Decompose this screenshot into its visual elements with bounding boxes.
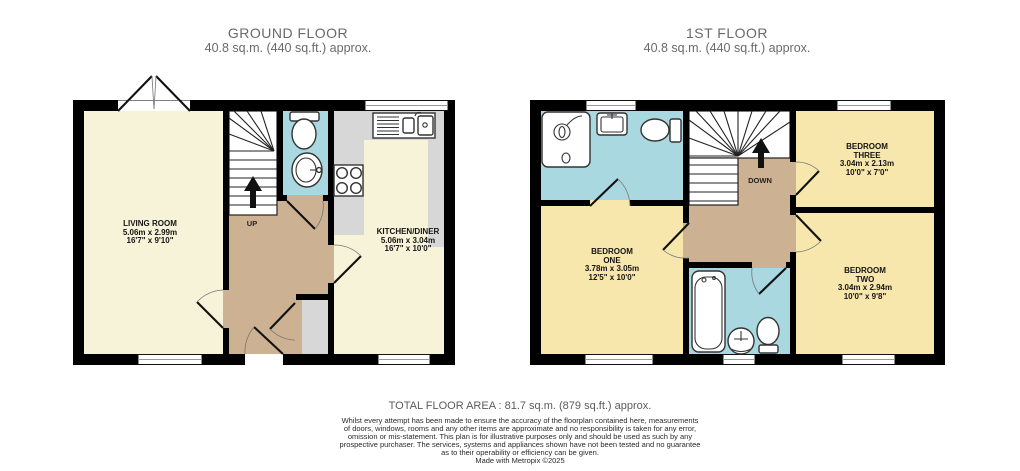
bathtub-icon [692, 271, 725, 352]
window [365, 101, 448, 111]
wall [683, 111, 689, 223]
down-label: DOWN [740, 176, 780, 185]
wall [323, 195, 328, 201]
hob-icon [334, 165, 363, 196]
outer-wall-right [444, 100, 455, 365]
window [837, 101, 891, 111]
wall [328, 111, 334, 245]
ground-floor-plan: LIVING ROOM 5.06m x 2.99m 16'7" x 9'10" … [73, 100, 455, 365]
wall [630, 200, 683, 206]
window [723, 355, 755, 365]
wall [277, 195, 287, 201]
up-label: UP [237, 219, 267, 228]
wall [223, 328, 229, 354]
bedrooms-right-floor [796, 111, 934, 354]
first-floor-title: 1ST FLOOR [577, 26, 877, 41]
sink-icon [597, 113, 627, 135]
living-room-floor [84, 111, 223, 354]
wall [790, 195, 796, 215]
shower-icon [542, 112, 590, 167]
window [586, 101, 636, 111]
total-floor-area: TOTAL FLOOR AREA : 81.7 sq.m. (879 sq.ft… [270, 400, 770, 412]
wall [786, 262, 790, 268]
first-floor-area: 40.8 sq.m. (440 sq.ft.) approx. [577, 41, 877, 55]
sink-icon [292, 153, 322, 187]
disclaimer: Whilst every attempt has been made to en… [250, 417, 790, 465]
first-floor-drawing [530, 100, 945, 365]
ground-floor-area: 40.8 sq.m. (440 sq.ft.) approx. [138, 41, 438, 55]
patio-doors [118, 76, 190, 111]
wall [328, 283, 334, 354]
front-door-opening [245, 354, 283, 365]
ground-floor-drawing [73, 100, 455, 365]
wall [223, 111, 229, 290]
staircase-ground [229, 111, 277, 215]
wall [790, 111, 796, 162]
wall [689, 262, 752, 268]
outer-wall-left [73, 100, 84, 365]
toilet-icon [757, 318, 779, 354]
wall [277, 111, 283, 201]
first-floor-header: 1ST FLOOR 40.8 sq.m. (440 sq.ft.) approx… [577, 26, 877, 55]
ground-floor-title: GROUND FLOOR [138, 26, 438, 41]
credit-line: Made with Metropix ©2025 [250, 457, 790, 465]
kitchen-sink-icon [373, 112, 435, 138]
wall [683, 258, 689, 354]
window [378, 355, 430, 365]
window [585, 355, 653, 365]
ground-floor-header: GROUND FLOOR 40.8 sq.m. (440 sq.ft.) app… [138, 26, 438, 55]
window [842, 355, 895, 365]
wall [796, 207, 934, 213]
toilet-icon [641, 119, 681, 142]
closet-floor [302, 300, 328, 354]
first-floor-plan: BEDROOM ONE 3.78m x 3.05m 12'5" x 10'0" … [530, 100, 945, 365]
wall [790, 252, 796, 354]
outer-wall-left [530, 100, 541, 365]
wall [541, 200, 590, 206]
outer-wall-right [934, 100, 945, 365]
window [138, 355, 202, 365]
wall-closet [296, 294, 328, 300]
sink-icon [728, 328, 754, 354]
